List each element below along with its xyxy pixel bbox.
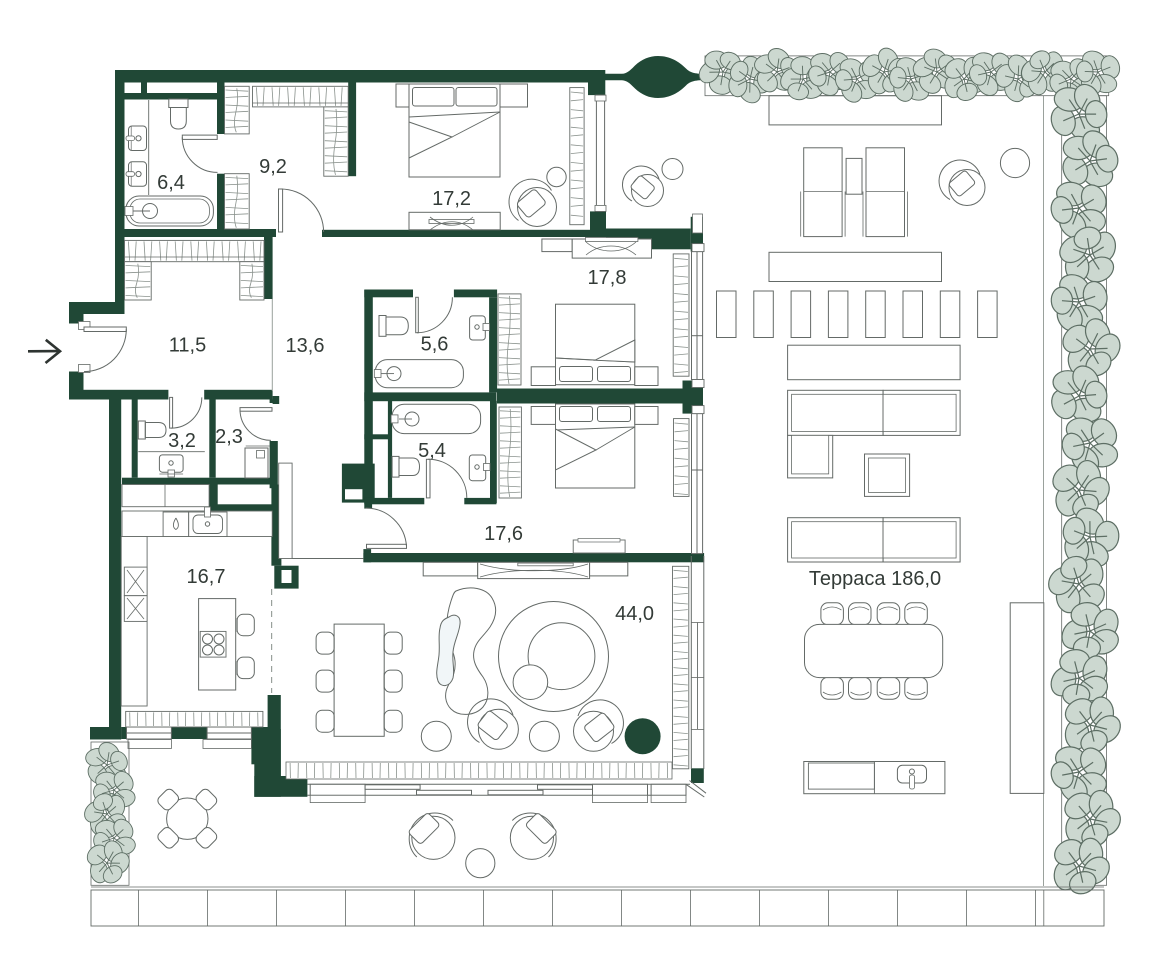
svg-text:44,0: 44,0 bbox=[615, 603, 654, 625]
svg-text:9,2: 9,2 bbox=[259, 156, 287, 178]
svg-text:11,5: 11,5 bbox=[169, 335, 206, 357]
svg-text:6,4: 6,4 bbox=[157, 172, 185, 194]
svg-text:17,2: 17,2 bbox=[432, 188, 471, 210]
svg-text:17,6: 17,6 bbox=[484, 523, 523, 545]
svg-text:Терраса 186,0: Терраса 186,0 bbox=[809, 568, 941, 590]
svg-text:5,4: 5,4 bbox=[418, 440, 446, 462]
svg-text:13,6: 13,6 bbox=[286, 335, 325, 357]
svg-text:17,8: 17,8 bbox=[588, 267, 627, 289]
svg-text:5,6: 5,6 bbox=[421, 334, 449, 356]
svg-text:16,7: 16,7 bbox=[187, 566, 226, 588]
svg-text:2,3: 2,3 bbox=[215, 426, 243, 448]
svg-text:3,2: 3,2 bbox=[168, 430, 196, 452]
